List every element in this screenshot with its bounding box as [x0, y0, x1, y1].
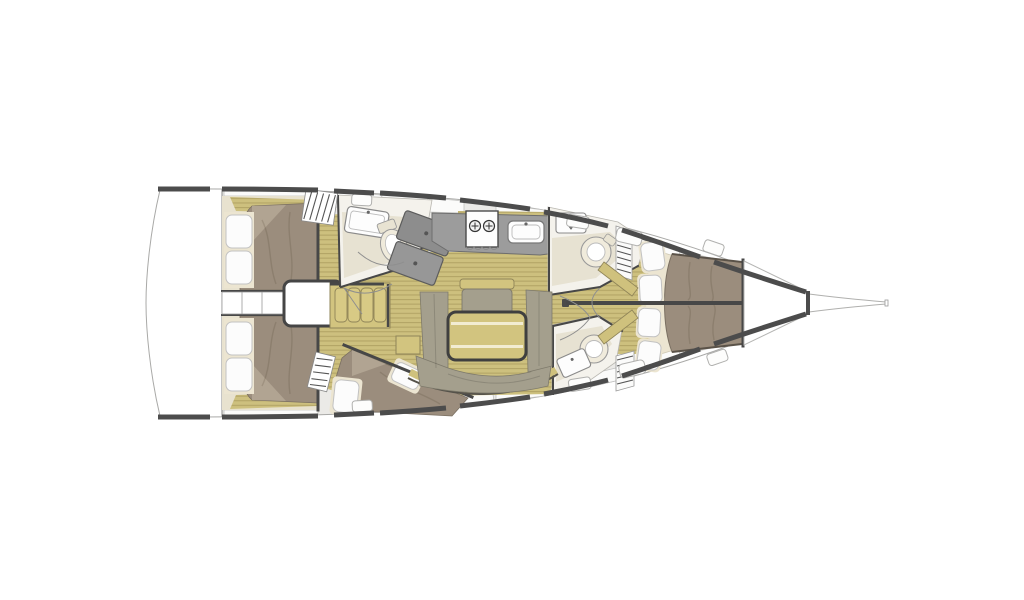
bowsprit	[809, 294, 886, 312]
salon	[396, 279, 558, 394]
sofa-cushion	[335, 288, 347, 322]
pillow	[226, 322, 252, 355]
galley-sink	[508, 221, 544, 243]
cockpit-steps-port	[302, 189, 338, 225]
deck-hatch	[706, 348, 729, 366]
salon-table	[448, 312, 526, 360]
pillow-group	[635, 306, 663, 339]
rail-segment	[222, 416, 318, 417]
deck-hatch	[351, 194, 372, 206]
locker-panel	[428, 198, 464, 213]
yacht-deck-plan	[0, 0, 1024, 600]
companionway-steps	[222, 292, 284, 314]
pillow	[226, 358, 252, 391]
table-leaf-seam	[451, 322, 523, 325]
pillow	[226, 251, 252, 284]
pillow	[638, 308, 661, 337]
stove-burner-icon	[470, 221, 481, 232]
centerline-beam	[566, 301, 744, 305]
bow	[744, 261, 888, 345]
stove-burner-icon	[484, 221, 495, 232]
step-box	[396, 336, 420, 354]
pillow	[226, 215, 252, 248]
rail-segment	[334, 191, 374, 193]
rail-segment	[222, 189, 318, 190]
deck-hatch	[352, 400, 373, 412]
table-leaf-seam	[451, 345, 523, 348]
bowsprit-tip	[885, 300, 888, 306]
pillow	[639, 275, 662, 304]
transom-platform	[146, 189, 222, 417]
bench-back	[460, 279, 514, 289]
faucet-dot	[524, 222, 527, 225]
galley	[432, 211, 564, 255]
sofa-cushion	[374, 288, 386, 322]
deck-plan-svg	[0, 0, 1024, 600]
aft-cabin-starboard	[222, 315, 318, 410]
rail-segment	[334, 413, 374, 415]
deck-hatch	[702, 239, 725, 257]
